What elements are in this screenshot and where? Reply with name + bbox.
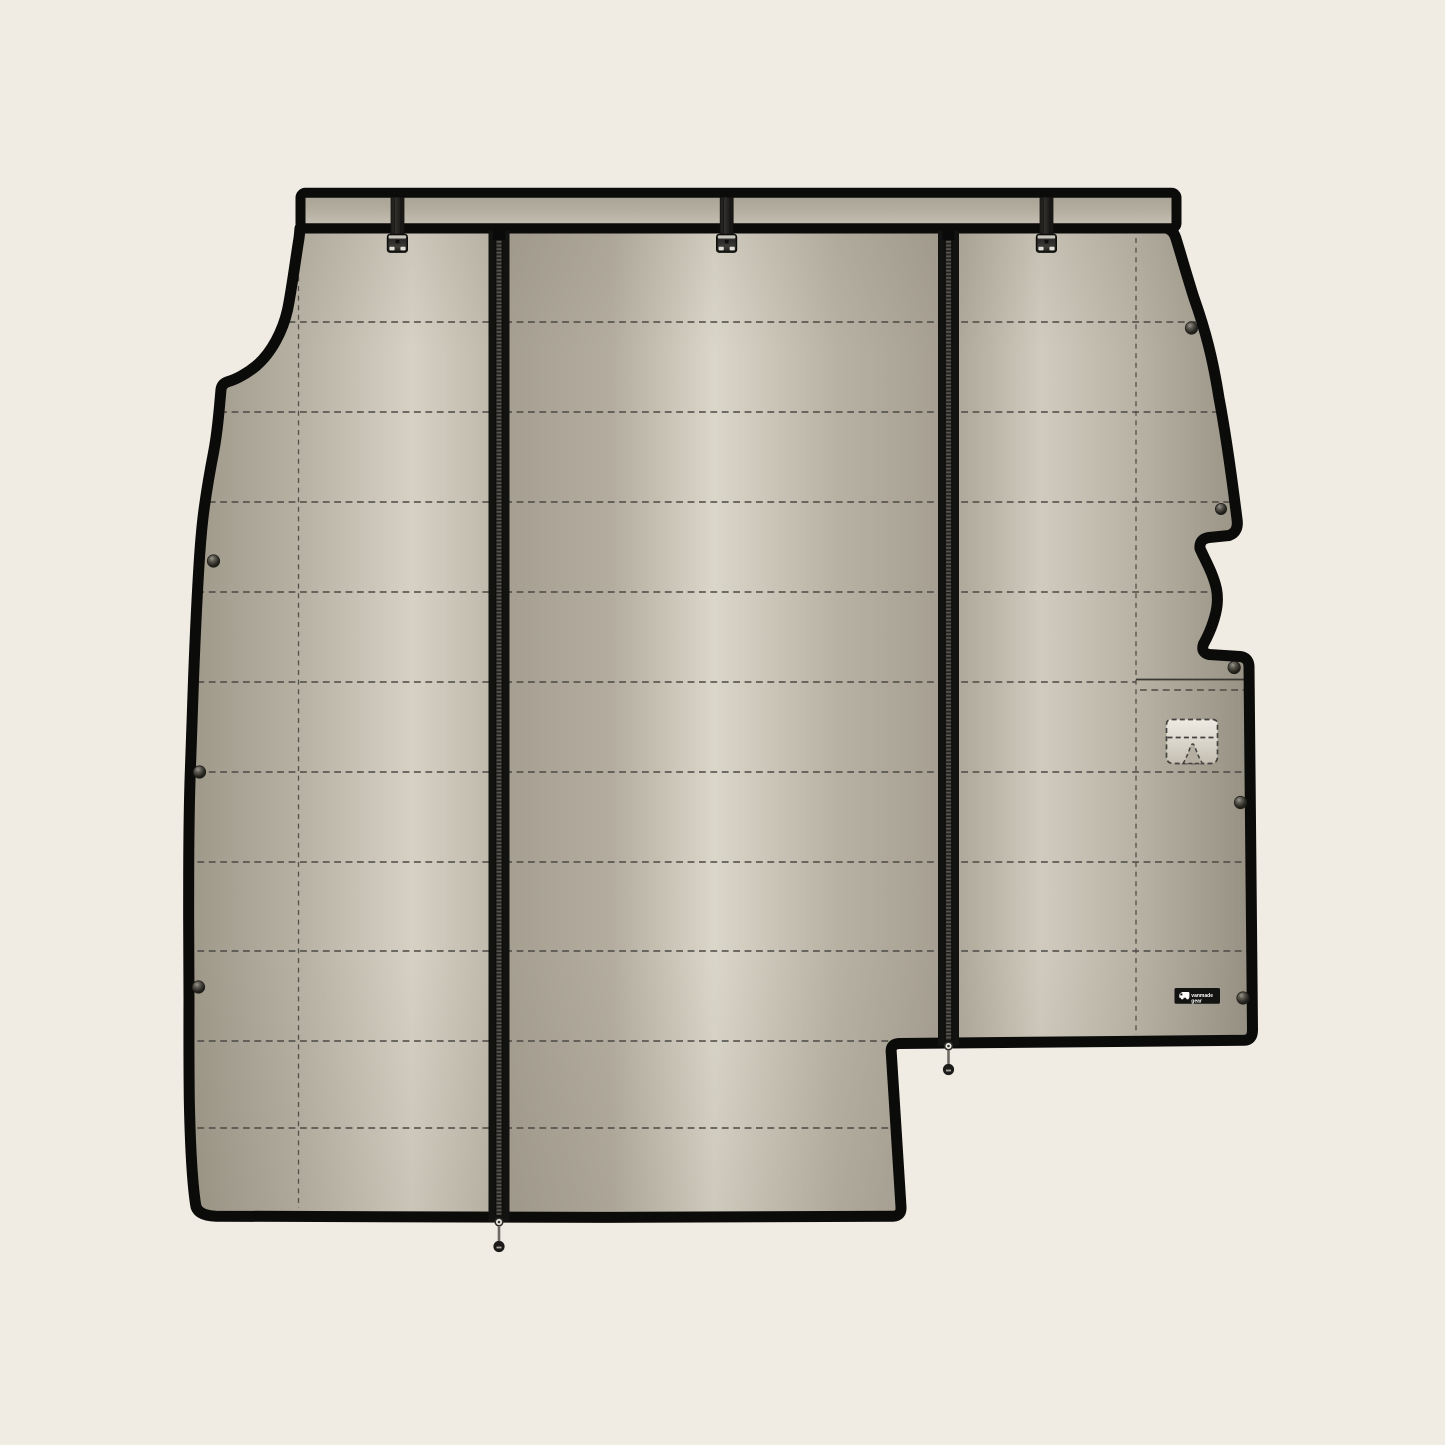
svg-text:gear: gear <box>1191 998 1202 1004</box>
